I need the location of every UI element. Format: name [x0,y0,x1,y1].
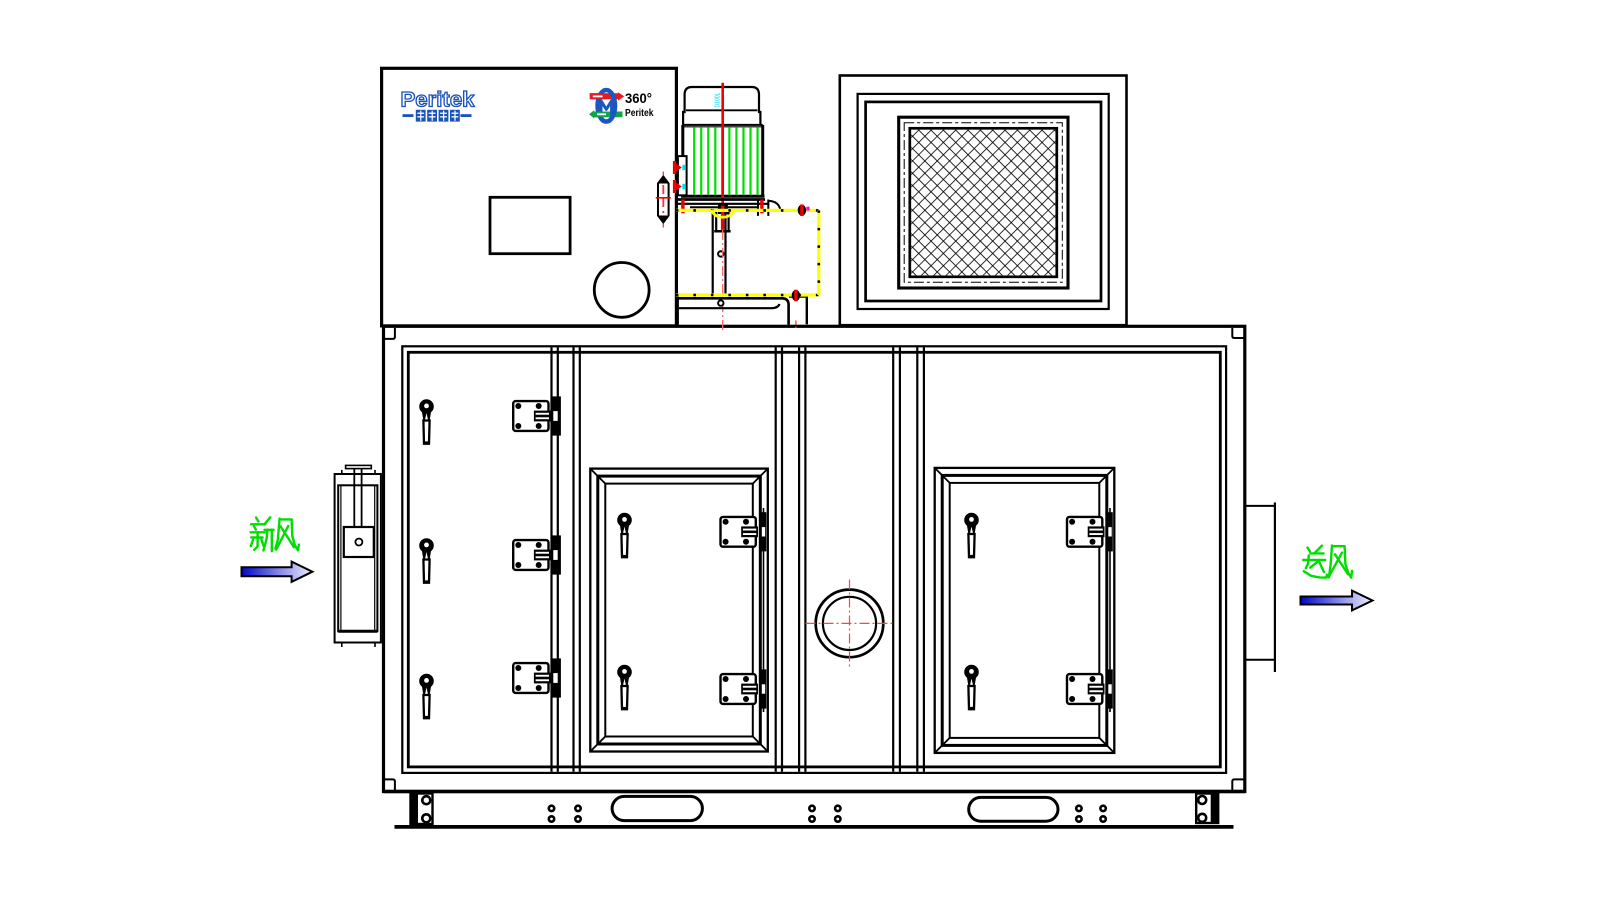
svg-text:D100L: D100L [713,93,722,108]
svg-text:Peritek: Peritek [625,108,654,119]
svg-text:Peritek: Peritek [401,88,475,112]
svg-text:360°: 360° [625,91,652,106]
